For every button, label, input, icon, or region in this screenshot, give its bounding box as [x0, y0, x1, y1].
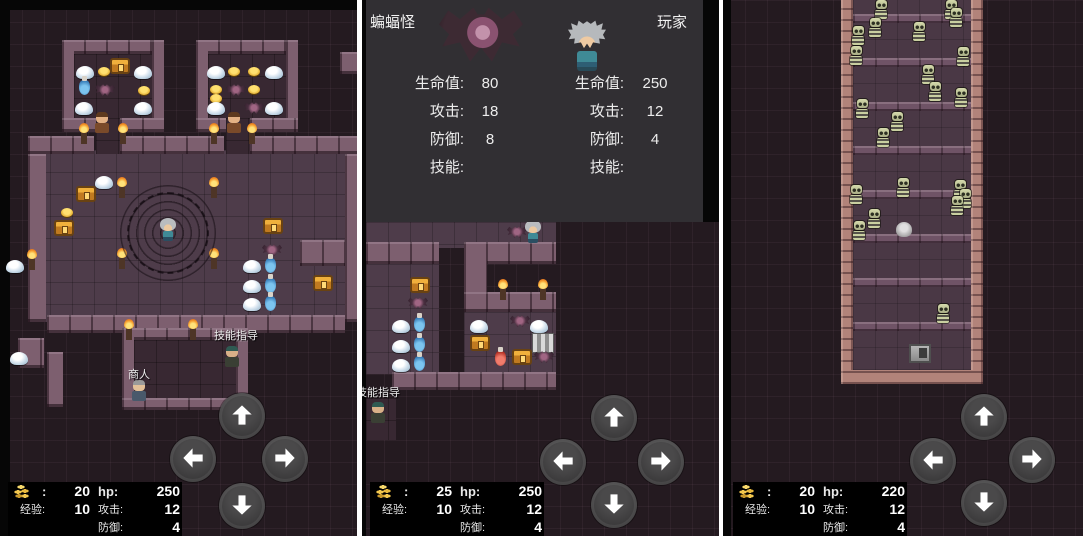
gold-stat: :: [374, 484, 416, 499]
black-tile: [723, 0, 731, 536]
player-sprite: [525, 220, 541, 244]
hp-label: hp:: [815, 484, 865, 499]
gold-value: 20: [779, 483, 815, 499]
skeleton-sprite: [953, 88, 969, 108]
gold-colon: :: [34, 484, 46, 499]
strip-tile: [853, 322, 971, 331]
potion-blue-sprite: [414, 337, 425, 352]
strip-tile: [853, 278, 971, 287]
wall-tile: [392, 372, 556, 390]
coin-stack-icon: [14, 484, 31, 498]
dpad-down-button[interactable]: [961, 480, 1007, 526]
exp-value: 10: [779, 501, 815, 517]
player-def-label: 防御:: [544, 130, 624, 150]
def-label: 防御:: [452, 519, 502, 535]
gold-stat: :: [737, 484, 779, 499]
coin-sprite: [138, 86, 150, 95]
exp-label: 经验:: [737, 501, 779, 517]
enemy-skill-value: [464, 158, 516, 178]
wall-tile: [28, 154, 46, 322]
potion-blue-sprite: [265, 296, 276, 311]
slime-sprite: [243, 298, 261, 311]
bat-monster-portrait: [439, 7, 523, 65]
dpad-up-button[interactable]: [219, 393, 265, 439]
map-label: 技能指导: [214, 327, 258, 343]
torch-sprite: [500, 288, 506, 300]
wall-tile: [345, 154, 357, 322]
up-arrow-icon: [973, 405, 995, 427]
skeleton-sprite: [848, 46, 864, 66]
potion-blue-sprite: [414, 356, 425, 371]
hp-value: 250: [140, 483, 180, 499]
atk-value: 12: [865, 501, 905, 517]
dpad-up-button[interactable]: [961, 394, 1007, 440]
skeleton-sprite: [850, 26, 866, 46]
chest-sprite: [470, 335, 490, 351]
enemy-name: 蝙蝠怪: [370, 11, 415, 32]
coin-sprite: [248, 85, 260, 94]
skeleton-sprite: [935, 304, 951, 324]
enemy-stats-column: 生命值:80 攻击:18 防御:8 技能:: [384, 74, 516, 178]
wall-tile: [300, 240, 345, 266]
torch-sprite: [81, 132, 87, 144]
torch-sprite: [126, 328, 132, 340]
coin-stack-icon: [376, 484, 393, 498]
player-name: 玩家: [657, 11, 687, 32]
potion-red-sprite: [495, 351, 506, 366]
skeleton-sprite: [895, 178, 911, 198]
player-skill-value: [624, 158, 686, 178]
exp-value: 10: [54, 501, 90, 517]
skeleton-sprite: [866, 209, 882, 229]
slime-sprite: [207, 102, 225, 115]
atk-label: 攻击:: [815, 501, 865, 517]
chest-sprite: [263, 218, 283, 234]
slime-sprite: [207, 66, 225, 79]
player-stats-panel: : 25 hp: 250 经验: 10 攻击: 12 防御: 4: [370, 482, 544, 536]
skeleton-sprite: [848, 185, 864, 205]
chest-sprite: [110, 58, 130, 74]
ghost-sprite: [896, 222, 912, 237]
torch-sprite: [119, 186, 125, 198]
slime-sprite: [470, 320, 488, 333]
hp-label: hp:: [90, 484, 140, 499]
gold-value: 25: [416, 483, 452, 499]
torch-sprite: [190, 328, 196, 340]
left-arrow-icon: [552, 450, 574, 472]
dpad-up-button[interactable]: [591, 395, 637, 441]
dpad-left-button[interactable]: [910, 438, 956, 484]
slime-sprite: [134, 102, 152, 115]
coin-sprite: [228, 67, 240, 76]
down-arrow-icon: [973, 491, 995, 513]
chest-sprite: [410, 277, 430, 293]
npc-skill-sprite: [370, 402, 386, 424]
def-value: 4: [140, 519, 180, 535]
player-skill-label: 技能:: [544, 158, 624, 178]
wall-tile: [250, 136, 357, 154]
black-tile: [10, 0, 357, 10]
skeleton-sprite: [867, 18, 883, 38]
atk-label: 攻击:: [90, 501, 140, 517]
slime-sprite: [10, 352, 28, 365]
enemy-hp-label: 生命值:: [384, 74, 464, 94]
skeleton-sprite: [854, 99, 870, 119]
gold-stat: :: [12, 484, 54, 499]
enemy-hp-value: 80: [464, 74, 516, 94]
wall-tile: [250, 118, 298, 132]
coin-sprite: [210, 85, 222, 94]
torch-sprite: [211, 132, 217, 144]
enemy-def-label: 防御:: [384, 130, 464, 150]
player-atk-label: 攻击:: [544, 102, 624, 122]
strip-tile: [853, 146, 971, 155]
right-arrow-icon: [1021, 448, 1043, 470]
player-portrait: [567, 20, 607, 72]
dpad-left-button[interactable]: [540, 439, 586, 485]
atk-value: 12: [140, 501, 180, 517]
wall-tile: [366, 242, 439, 264]
slime-sprite: [265, 66, 283, 79]
skeleton-sprite: [889, 112, 905, 132]
slime-sprite: [95, 176, 113, 189]
player-hp-label: 生命值:: [544, 74, 624, 94]
hp-label: hp:: [452, 484, 502, 499]
potion-blue-sprite: [265, 258, 276, 273]
strip-tile: [853, 234, 971, 243]
guard-sprite: [94, 112, 110, 134]
skeleton-sprite: [927, 82, 943, 102]
torch-sprite: [29, 258, 35, 270]
hp-value: 250: [502, 483, 542, 499]
torch-sprite: [119, 257, 125, 269]
torch-sprite: [540, 288, 546, 300]
skeleton-sprite: [948, 8, 964, 28]
potion-blue-sprite: [414, 317, 425, 332]
slime-sprite: [243, 260, 261, 273]
door-sprite: [909, 344, 931, 363]
wall-tile: [62, 40, 164, 54]
up-arrow-icon: [603, 406, 625, 428]
potion-blue-sprite: [79, 80, 90, 95]
map-label: 技能指导: [362, 384, 400, 400]
up-arrow-icon: [231, 404, 253, 426]
slime-sprite: [530, 320, 548, 333]
player-stats-panel: : 20 hp: 250 经验: 10 攻击: 12 防御: 4: [8, 482, 182, 536]
slime-sprite: [392, 359, 410, 372]
player-sprite: [160, 218, 176, 242]
right-arrow-icon: [274, 447, 296, 469]
left-arrow-icon: [182, 447, 204, 469]
merchant-sprite: [131, 380, 147, 402]
dungeon-hall-map: 技能指导商人: [0, 0, 357, 536]
gold-value: 20: [54, 483, 90, 499]
chest-sprite: [54, 220, 74, 236]
chest-sprite: [512, 349, 532, 365]
slime-sprite: [6, 260, 24, 273]
slime-sprite: [265, 102, 283, 115]
slime-sprite: [134, 66, 152, 79]
guard-sprite: [226, 112, 242, 134]
hp-value: 220: [865, 483, 905, 499]
enemy-def-value: 8: [464, 130, 516, 150]
down-arrow-icon: [603, 493, 625, 515]
gold-colon: :: [759, 484, 771, 499]
potion-blue-sprite: [265, 278, 276, 293]
slime-sprite: [75, 102, 93, 115]
skeleton-sprite: [911, 22, 927, 42]
coin-sprite: [61, 208, 73, 217]
enemy-atk-label: 攻击:: [384, 102, 464, 122]
black-tile: [703, 0, 719, 222]
exp-label: 经验:: [374, 501, 416, 517]
map-label: 商人: [128, 366, 150, 382]
exp-value: 10: [416, 501, 452, 517]
torch-sprite: [211, 186, 217, 198]
player-atk-value: 12: [624, 102, 686, 122]
player-def-value: 4: [624, 130, 686, 150]
torch-sprite: [211, 257, 217, 269]
game-screenshot-middle: 技能指导 蝙蝠怪 玩家 生命值:80 攻击:18 防御:8 技能: 生命值:25…: [362, 0, 719, 536]
def-value: 4: [865, 519, 905, 535]
def-label: 防御:: [90, 519, 140, 535]
down-arrow-icon: [231, 494, 253, 516]
player-hp-value: 250: [624, 74, 686, 94]
exp-label: 经验:: [12, 501, 54, 517]
enemy-skill-label: 技能:: [384, 158, 464, 178]
skeleton-sprite: [851, 221, 867, 241]
dpad-right-button[interactable]: [262, 436, 308, 482]
gold-colon: :: [396, 484, 408, 499]
player-stats-column: 生命值:250 攻击:12 防御:4 技能:: [544, 74, 686, 178]
torch-sprite: [249, 132, 255, 144]
chest-sprite: [76, 186, 96, 202]
game-screenshot-left: 技能指导商人 : 20 hp: 250 经验: 10 攻击: 12 防御: 4: [0, 0, 357, 536]
slime-sprite: [392, 340, 410, 353]
wall-tile: [196, 40, 298, 54]
wall-tile: [47, 352, 63, 407]
stairs-sprite: [532, 333, 554, 353]
skeleton-sprite: [955, 47, 971, 67]
def-value: 4: [502, 519, 542, 535]
coin-sprite: [248, 67, 260, 76]
skeleton-sprite: [875, 128, 891, 148]
dpad-down-button[interactable]: [219, 483, 265, 529]
wall-tile: [340, 52, 357, 74]
skeleton-sprite: [873, 0, 889, 20]
atk-value: 12: [502, 501, 542, 517]
player-stats-panel: : 20 hp: 220 经验: 10 攻击: 12 防御: 4: [733, 482, 907, 536]
dpad-left-button[interactable]: [170, 436, 216, 482]
chest-sprite: [313, 275, 333, 291]
coin-sprite: [98, 67, 110, 76]
skeleton-corridor-map: [723, 0, 1083, 536]
dpad-right-button[interactable]: [638, 439, 684, 485]
coin-stack-icon: [739, 484, 756, 498]
game-screenshot-right: : 20 hp: 220 经验: 10 攻击: 12 防御: 4: [723, 0, 1083, 536]
wall-salmon-tile: [841, 370, 983, 384]
npc-skill-sprite: [224, 346, 240, 368]
def-label: 防御:: [815, 519, 865, 535]
right-arrow-icon: [650, 450, 672, 472]
wall-tile: [120, 136, 224, 154]
slime-sprite: [243, 280, 261, 293]
dpad-right-button[interactable]: [1009, 437, 1055, 483]
torch-sprite: [120, 132, 126, 144]
left-arrow-icon: [922, 449, 944, 471]
dpad-down-button[interactable]: [591, 482, 637, 528]
battle-comparison-panel: 蝙蝠怪 玩家 生命值:80 攻击:18 防御:8 技能: 生命值:250 攻击:…: [366, 0, 703, 222]
enemy-atk-value: 18: [464, 102, 516, 122]
slime-sprite: [392, 320, 410, 333]
skeleton-sprite: [949, 196, 965, 216]
atk-label: 攻击:: [452, 501, 502, 517]
strip-tile: [853, 58, 971, 67]
